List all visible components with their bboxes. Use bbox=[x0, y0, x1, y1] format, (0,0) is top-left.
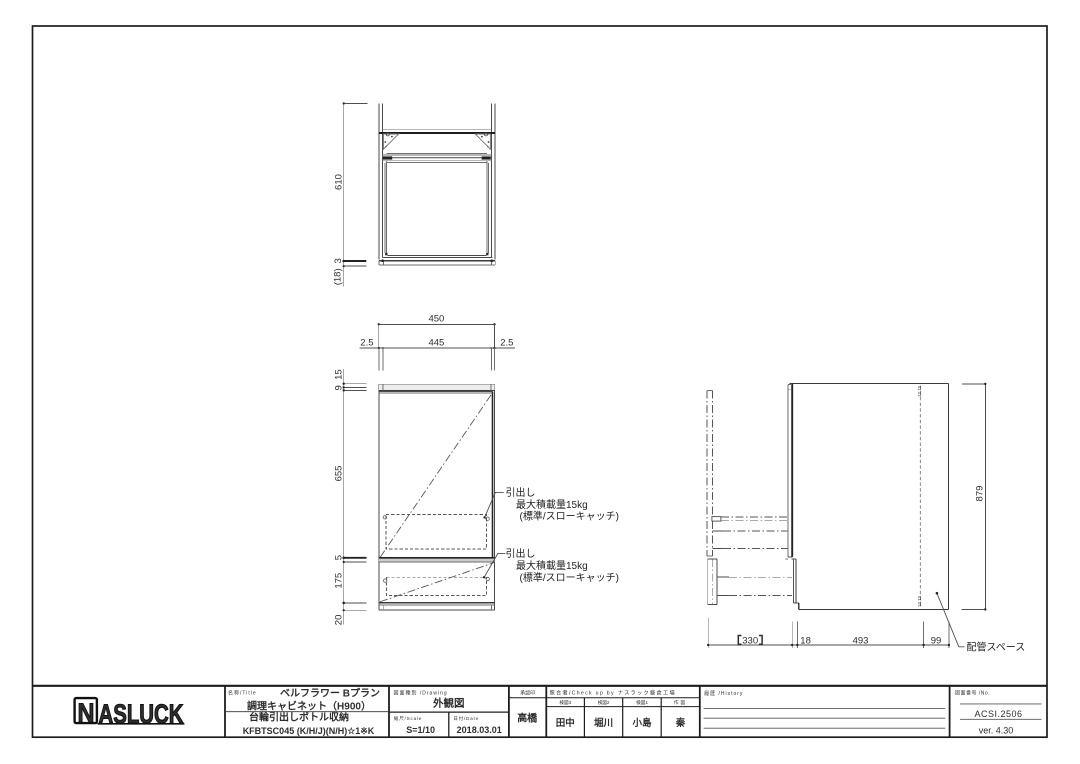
svg-text:99: 99 bbox=[931, 636, 942, 647]
svg-text:検図3: 検図3 bbox=[559, 699, 571, 706]
svg-text:9: 9 bbox=[333, 385, 344, 390]
svg-text:引出し: 引出し bbox=[506, 547, 536, 560]
svg-text:KFBTSC045 (K/H/J)(N/H)☆1※K: KFBTSC045 (K/H/J)(N/H)☆1※K bbox=[243, 726, 375, 736]
svg-text:引出し: 引出し bbox=[506, 486, 536, 499]
svg-text:ベルフラワー Bプラン: ベルフラワー Bプラン bbox=[280, 687, 380, 700]
svg-text:(標準/スローキャッチ): (標準/スローキャッチ) bbox=[520, 571, 619, 584]
svg-text:台輪引出しボトル収納: 台輪引出しボトル収納 bbox=[249, 710, 349, 723]
svg-text:堀川: 堀川 bbox=[594, 717, 613, 729]
svg-text:高橋: 高橋 bbox=[517, 712, 538, 725]
svg-text:12.13: 12.13 bbox=[917, 595, 922, 607]
svg-text:(18): (18) bbox=[332, 268, 343, 285]
svg-text:450: 450 bbox=[428, 314, 444, 325]
svg-text:2018.03.01: 2018.03.01 bbox=[457, 725, 502, 735]
svg-text:縮尺/Scale: 縮尺/Scale bbox=[394, 715, 422, 722]
svg-text:ACSI.2506: ACSI.2506 bbox=[974, 709, 1022, 719]
svg-text:(標準/スローキャッチ): (標準/スローキャッチ) bbox=[520, 510, 619, 523]
svg-text:図面番号 /No.: 図面番号 /No. bbox=[955, 690, 990, 697]
svg-text:175: 175 bbox=[333, 573, 344, 589]
svg-text:調理キャビネット（H900）: 調理キャビネット（H900） bbox=[247, 699, 371, 712]
svg-text:3: 3 bbox=[333, 258, 344, 263]
svg-text:445: 445 bbox=[428, 337, 444, 348]
svg-text:検図2: 検図2 bbox=[598, 699, 610, 706]
svg-text:配管スペース: 配管スペース bbox=[967, 640, 1026, 653]
svg-text:図面種別 /Drawing: 図面種別 /Drawing bbox=[394, 690, 448, 697]
svg-text:小島: 小島 bbox=[631, 717, 652, 729]
svg-text:作図: 作図 bbox=[674, 699, 687, 706]
svg-text:2.5: 2.5 bbox=[360, 337, 373, 348]
svg-text:N: N bbox=[78, 698, 95, 728]
svg-text:15: 15 bbox=[333, 369, 344, 380]
svg-text:655: 655 bbox=[333, 466, 344, 482]
svg-text:最大積載量15kg: 最大積載量15kg bbox=[516, 498, 588, 511]
svg-text:S=1/10: S=1/10 bbox=[406, 725, 435, 735]
svg-text:330: 330 bbox=[742, 636, 758, 647]
svg-text:外観図: 外観図 bbox=[432, 697, 465, 710]
svg-text:秦: 秦 bbox=[675, 717, 686, 729]
svg-text:照合者/Check up by ナスラック鎌倉工場: 照合者/Check up by ナスラック鎌倉工場 bbox=[550, 688, 676, 696]
svg-text:2.5: 2.5 bbox=[500, 337, 513, 348]
svg-text:ver. 4.30: ver. 4.30 bbox=[979, 726, 1014, 736]
svg-text:20: 20 bbox=[333, 615, 344, 626]
svg-text:検図1: 検図1 bbox=[636, 699, 648, 706]
svg-text:879: 879 bbox=[975, 486, 986, 502]
svg-text:18: 18 bbox=[800, 636, 811, 647]
svg-text:610: 610 bbox=[334, 174, 345, 190]
svg-text:田中: 田中 bbox=[556, 717, 575, 729]
svg-text:履歴 /History: 履歴 /History bbox=[704, 691, 743, 697]
svg-text:承認印: 承認印 bbox=[520, 690, 535, 697]
svg-text:最大積載量15kg: 最大積載量15kg bbox=[516, 559, 588, 572]
svg-text:日付/Date: 日付/Date bbox=[453, 715, 479, 722]
svg-text:493: 493 bbox=[853, 636, 869, 647]
svg-text:12.13: 12.13 bbox=[917, 385, 922, 397]
svg-text:5: 5 bbox=[333, 555, 344, 560]
svg-text:名称/Title: 名称/Title bbox=[228, 690, 257, 697]
